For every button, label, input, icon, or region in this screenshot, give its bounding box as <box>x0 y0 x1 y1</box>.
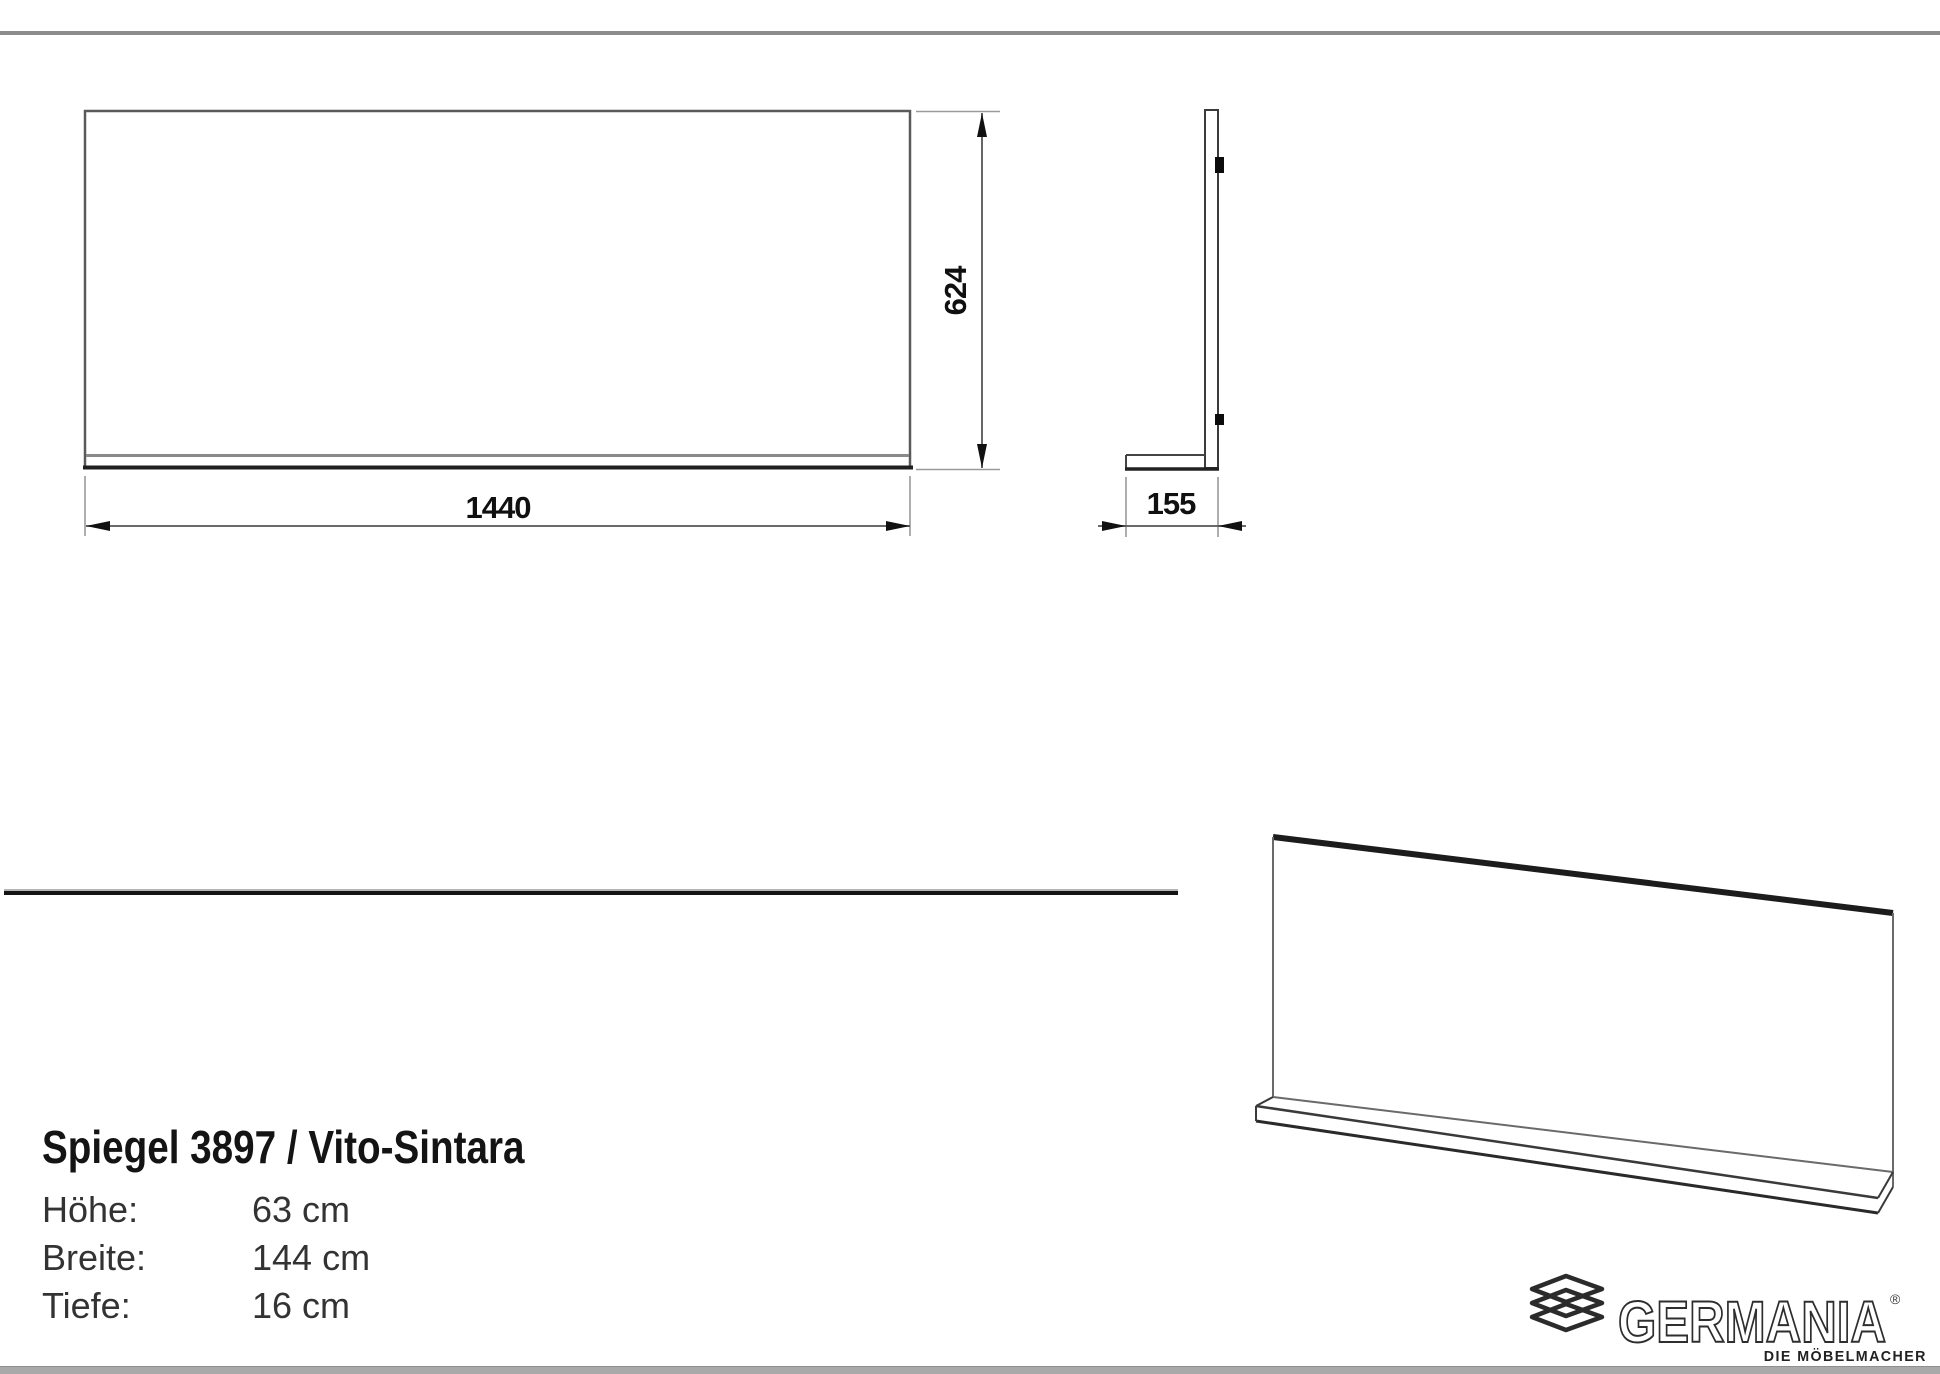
front-view <box>83 111 913 468</box>
arrowhead-right <box>886 521 910 531</box>
perspective-shelf-front-bottom-edge <box>1256 1121 1878 1213</box>
perspective-shelf-front-top-edge <box>1256 1106 1878 1198</box>
side-view <box>1125 110 1224 469</box>
arrowhead-down <box>977 444 987 468</box>
depth-dimension-label: 155 <box>1147 486 1196 521</box>
spec-value: 16 cm <box>252 1282 350 1330</box>
perspective-shelf-right-cap-top <box>1878 1172 1893 1198</box>
arrowhead-up <box>977 113 987 137</box>
spec-row-tiefe: Tiefe:16 cm <box>42 1282 682 1330</box>
arrowhead-inward-left <box>1102 521 1126 531</box>
brand-logo: GERMANIA ® <box>1532 1276 1901 1355</box>
arrowhead-left <box>86 521 110 531</box>
perspective-top-edge <box>1273 837 1893 913</box>
registered-trademark-symbol: ® <box>1890 1291 1901 1307</box>
perspective-view <box>1256 837 1893 1213</box>
product-title: Spiegel 3897 / Vito-Sintara <box>42 1124 580 1170</box>
wall-bracket-lower <box>1215 414 1224 425</box>
side-depth-dimension: 155 <box>1098 477 1246 537</box>
spec-row-breite: Breite:144 cm <box>42 1234 682 1282</box>
perspective-shelf-left-cap-top <box>1256 1097 1273 1106</box>
spec-table: Höhe:63 cm Breite:144 cm Tiefe:16 cm <box>42 1186 682 1330</box>
spec-row-hoehe: Höhe:63 cm <box>42 1186 682 1234</box>
spec-sheet-page: 1440 624 155 <box>0 0 1940 1374</box>
brand-wordmark: GERMANIA <box>1618 1290 1886 1355</box>
wall-bracket-upper <box>1215 157 1224 173</box>
front-height-dimension: 624 <box>916 112 1000 470</box>
spec-value: 63 cm <box>252 1186 350 1234</box>
spec-label: Tiefe: <box>42 1282 252 1330</box>
height-dimension-label: 624 <box>938 265 973 315</box>
width-dimension-label: 1440 <box>466 490 531 525</box>
stacked-boards-icon <box>1532 1276 1602 1330</box>
spec-value: 144 cm <box>252 1234 370 1282</box>
section-divider-rule <box>4 889 1178 895</box>
arrowhead-inward-right <box>1218 521 1242 531</box>
brand-tagline: DIE MÖBELMACHER <box>1764 1348 1912 1365</box>
bottom-border-bar <box>0 1366 1940 1374</box>
front-width-dimension: 1440 <box>85 476 910 536</box>
front-view-mirror-outline <box>85 111 910 468</box>
spec-label: Höhe: <box>42 1186 252 1234</box>
perspective-shelf-right-cap-bottom <box>1878 1187 1893 1213</box>
product-info-block: Spiegel 3897 / Vito-Sintara Höhe:63 cm B… <box>42 1124 682 1330</box>
perspective-shelf-rear-edge <box>1273 1097 1893 1172</box>
spec-label: Breite: <box>42 1234 252 1282</box>
